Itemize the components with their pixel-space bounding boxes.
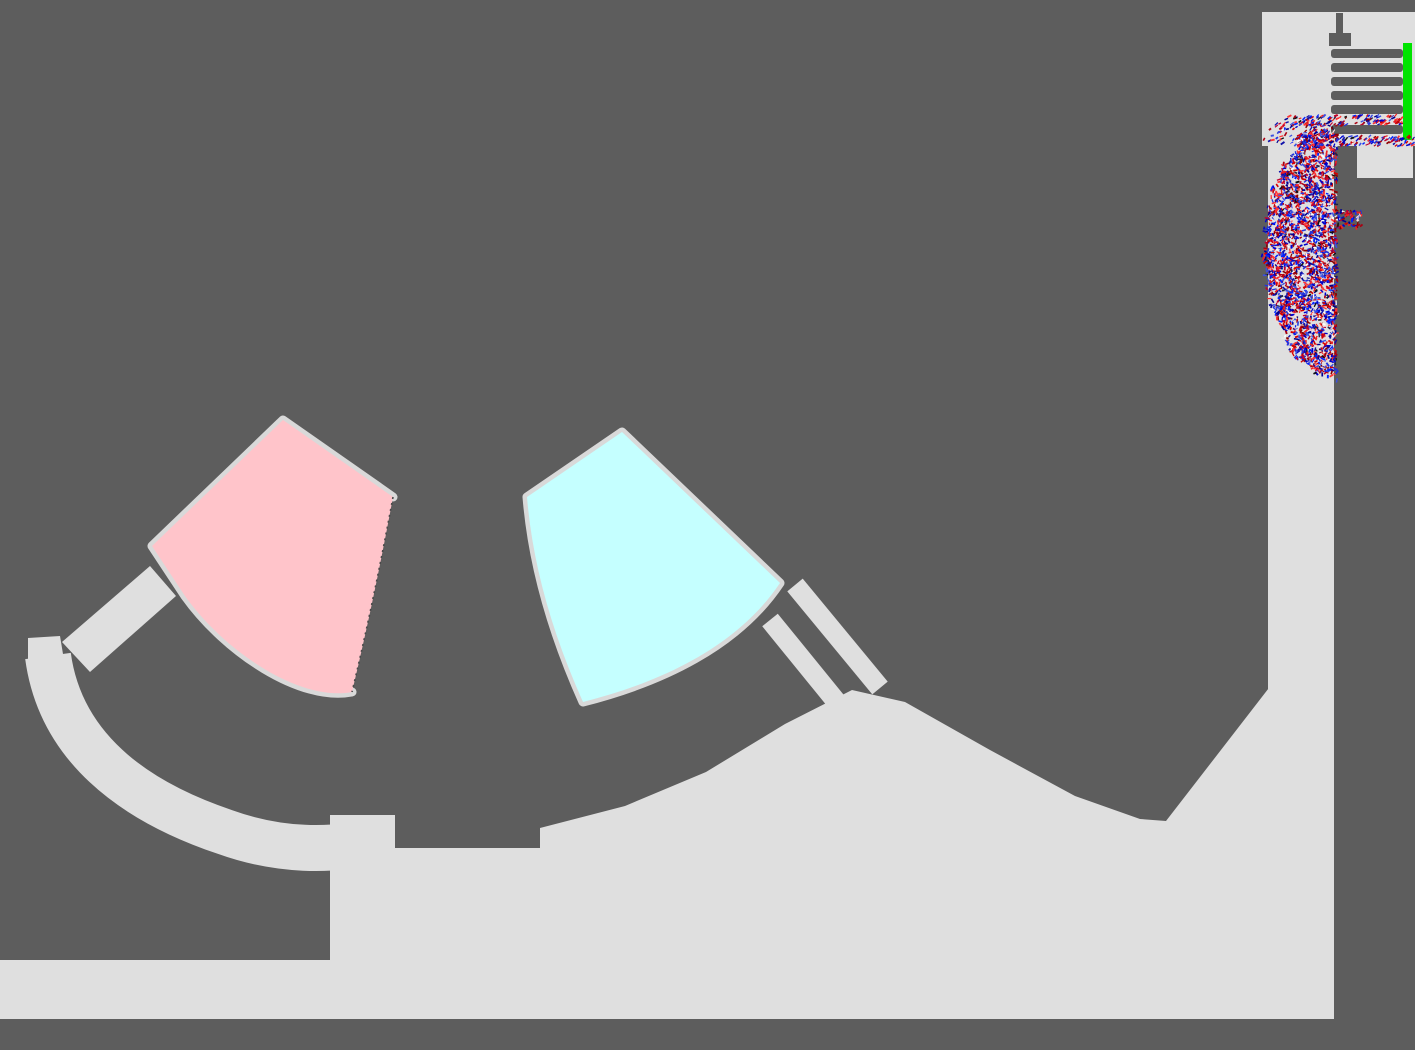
comb-bar-2 (1331, 63, 1403, 72)
comb-bar-1 (1331, 49, 1403, 58)
comb-bar-4 (1331, 91, 1403, 100)
comb-bar-5 (1331, 105, 1403, 114)
hanger-block (1329, 33, 1351, 46)
green-gate[interactable] (1403, 43, 1412, 140)
simulation-viewport[interactable] (0, 0, 1415, 1050)
comb-bar-3 (1331, 77, 1403, 86)
hanger-rod (1336, 13, 1343, 34)
chute-floor-connector (330, 815, 395, 965)
comb-housing-foot (1357, 144, 1413, 178)
simulation-canvas[interactable] (0, 0, 1415, 1050)
